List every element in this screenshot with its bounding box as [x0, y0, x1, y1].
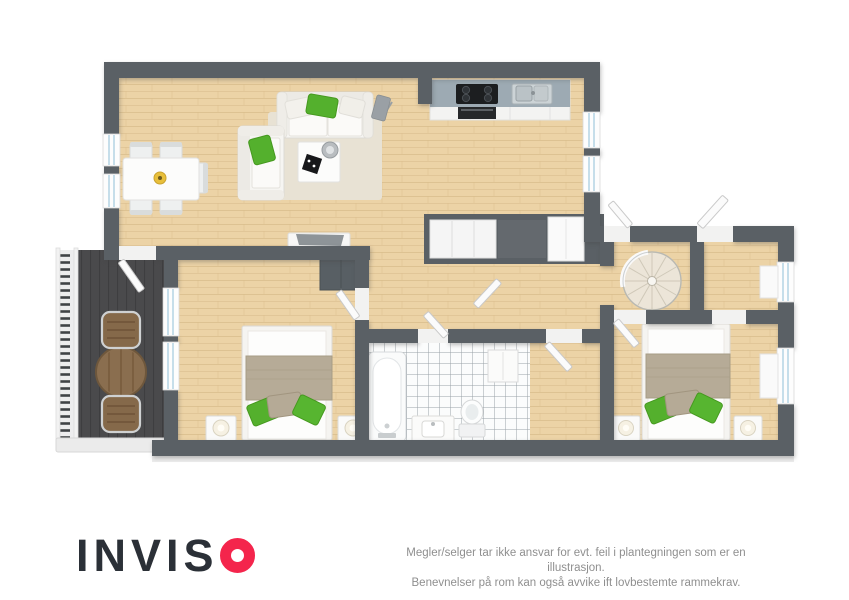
entrance-closets — [424, 214, 604, 264]
wall-bathroom-top — [355, 329, 418, 343]
window — [103, 134, 120, 166]
window — [103, 174, 120, 208]
wall-balcony-right — [164, 336, 178, 342]
wall-bedroom2-top — [746, 310, 794, 324]
staircase-pole — [648, 277, 657, 286]
exterior-door — [608, 201, 633, 228]
vanity-sink — [412, 416, 454, 442]
kitchen — [430, 80, 570, 120]
wall-right — [778, 302, 794, 348]
tv-console — [288, 233, 350, 247]
window-sill — [760, 354, 778, 398]
tv — [296, 234, 344, 246]
entrance-door — [697, 195, 728, 229]
wall-kitchen-right — [584, 62, 600, 112]
inviso-logo: INVIS — [76, 533, 255, 578]
window — [583, 156, 600, 192]
railing-outer-rail — [56, 248, 60, 448]
wall-bottom — [152, 440, 794, 456]
tub-faucet — [378, 433, 396, 438]
disclaimer: Megler/selger tar ikke ansvar for evt. f… — [378, 546, 774, 591]
building-shadow — [152, 456, 794, 462]
logo-letters: INVIS — [76, 533, 219, 578]
wall-top — [104, 62, 600, 78]
wall-bedroom2-left — [600, 305, 614, 448]
window — [163, 288, 179, 336]
spiral-staircase — [622, 252, 681, 310]
balcony-chair-top — [102, 312, 140, 348]
wall-closetroom-top — [535, 329, 546, 343]
wall-bedroom2-top — [646, 310, 712, 324]
balcony-railing — [58, 250, 76, 446]
wall-living-south — [156, 246, 370, 260]
wall-balcony-right — [164, 246, 178, 288]
logo-o-icon — [220, 538, 255, 573]
entry-floor — [498, 220, 546, 258]
wall-stair-hall-divider — [690, 242, 704, 316]
closet — [430, 220, 496, 258]
toilet — [459, 400, 485, 437]
wall-bathroom-top — [448, 329, 535, 343]
wall-kitchen-stub — [418, 62, 432, 104]
oven — [458, 107, 496, 119]
sofa — [277, 92, 373, 138]
threshold-hall-opening — [712, 310, 746, 324]
wall-right — [778, 226, 794, 262]
wall-left — [104, 166, 119, 174]
floor-plan-illustration — [0, 0, 849, 520]
wall-left — [104, 62, 119, 134]
balcony-end-rail — [56, 438, 168, 452]
window — [583, 112, 600, 148]
page: INVIS Megler/selger tar ikke ansvar for … — [0, 0, 849, 600]
railing-inner-rail — [74, 248, 78, 448]
bathtub — [368, 352, 406, 442]
faucet — [531, 91, 535, 95]
loveseat — [238, 126, 284, 200]
stair-room — [622, 252, 681, 310]
disclaimer-line-2: Benevnelser på rom kan også avvike ift l… — [378, 576, 774, 591]
kitchen-sink — [512, 84, 552, 104]
cooktop — [456, 84, 498, 104]
threshold-exterior-door — [604, 226, 630, 242]
wall-kitchen-right — [584, 148, 600, 156]
wall-left — [104, 208, 119, 260]
window — [760, 348, 794, 404]
bathroom-cabinet — [488, 350, 518, 382]
window-sill — [760, 266, 778, 298]
drain — [385, 424, 390, 429]
coffee-table — [298, 142, 340, 182]
wall-balcony-right — [164, 390, 178, 448]
threshold-balcony-door — [119, 246, 156, 260]
window — [163, 342, 179, 390]
threshold-closetroom-door — [546, 329, 582, 343]
balcony-chair-bottom — [102, 396, 140, 432]
wall-bedroom1-right — [355, 246, 369, 288]
disclaimer-line-1: Megler/selger tar ikke ansvar for evt. f… — [378, 546, 774, 576]
window — [760, 262, 794, 302]
wall-wing-top — [630, 226, 697, 242]
